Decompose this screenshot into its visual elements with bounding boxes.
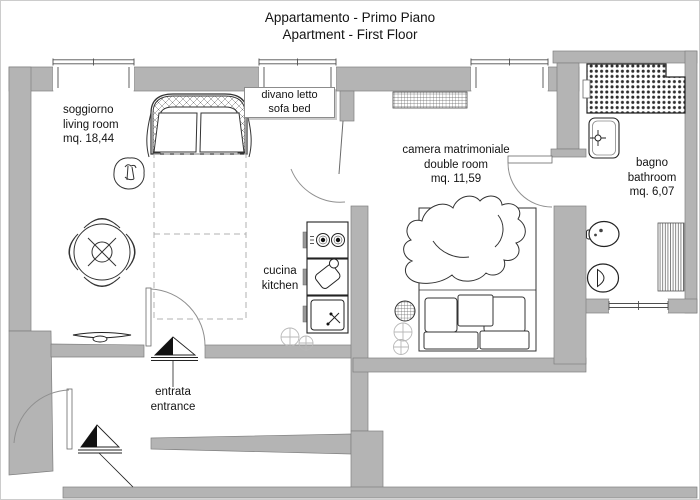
bed <box>404 196 536 351</box>
pillow-left <box>425 298 457 332</box>
wall-bath-top <box>553 51 697 63</box>
wall-hall-right <box>205 345 353 358</box>
wall-left <box>9 67 31 331</box>
wall-top-b <box>134 67 259 91</box>
radiator-bedroom <box>393 92 467 108</box>
plan-title: Appartamento - Primo Piano Apartment - F… <box>1 9 699 43</box>
wall-bath-left-upper <box>557 63 579 149</box>
wall-hall-left <box>51 344 144 357</box>
sofa <box>147 94 251 157</box>
dining-table <box>69 219 135 287</box>
bathroom-window <box>609 299 668 313</box>
wall-left-lower-block <box>9 331 53 475</box>
window-1 <box>53 58 134 91</box>
label-bathroom: bagno bathroom mq. 6,07 <box>612 156 692 200</box>
sofa-cushion-left <box>154 113 197 152</box>
plan-title-italian: Appartamento - Primo Piano <box>1 9 699 26</box>
wall-bottom-band <box>63 487 697 498</box>
toilet <box>588 264 619 292</box>
fan-symbol-bedroom <box>394 323 413 355</box>
washing-machine <box>311 300 344 330</box>
kitchen-unit <box>303 222 348 333</box>
window-2 <box>259 58 336 91</box>
wall-top-c <box>336 67 471 91</box>
wall-bath-door-lip <box>551 149 586 157</box>
washbasin <box>589 118 619 158</box>
stair-arrow <box>78 425 133 487</box>
shower <box>583 64 685 113</box>
wall-bedroom-door-stub <box>340 91 354 121</box>
radiator-bathroom <box>658 223 684 291</box>
sofa-cushion-right <box>200 113 244 152</box>
wall-kitchen-vertical <box>351 206 368 431</box>
bidet <box>587 222 620 247</box>
floor-plan-drawing <box>1 1 700 500</box>
bedside-stool <box>395 301 415 321</box>
floor-plan-page: Appartamento - Primo Piano Apartment - F… <box>0 0 700 500</box>
wall-bedroom-bottom <box>353 358 586 372</box>
wall-bath-left-lower <box>554 206 586 364</box>
window-3 <box>471 58 548 91</box>
label-living-room: soggiorno living room mq. 18,44 <box>63 103 119 147</box>
decor-circle <box>114 158 144 189</box>
label-kitchen: cucina kitchen <box>253 264 307 293</box>
label-bedroom: camera matrimoniale double room mq. 11,5… <box>376 143 536 187</box>
folded-cover <box>458 295 493 326</box>
sofa-bed-open-outline <box>154 154 246 319</box>
entrance-arrow <box>151 337 198 387</box>
entrance-door <box>146 288 205 346</box>
wall-corridor-corner <box>351 431 383 488</box>
wall-bath-bottom-right <box>668 299 697 313</box>
shower-entry <box>583 80 590 98</box>
plan-title-english: Apartment - First Floor <box>1 26 699 43</box>
bedroom-door <box>291 121 345 202</box>
wall-corridor-bottom <box>151 434 351 454</box>
label-sofa-bed: divano letto sofa bed <box>244 87 335 118</box>
tv <box>73 333 131 343</box>
label-entrance: entrata entrance <box>133 385 213 414</box>
